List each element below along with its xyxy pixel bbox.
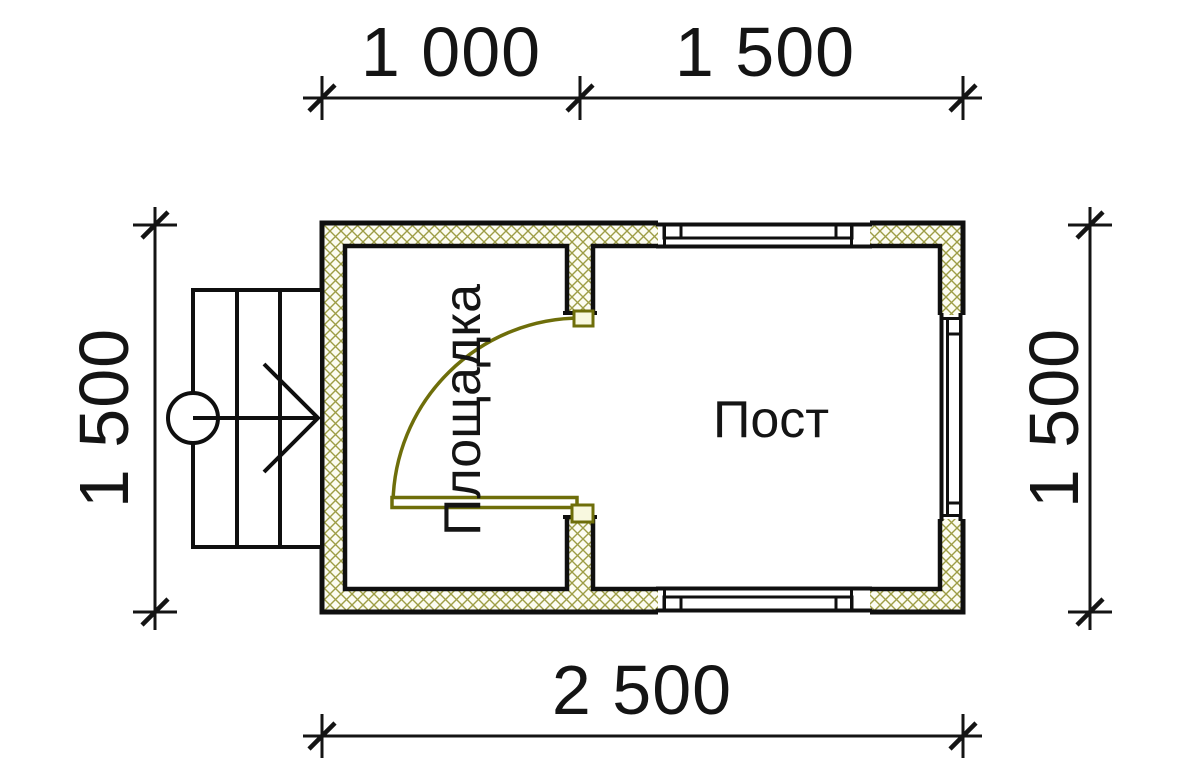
- window-top: [656, 218, 872, 251]
- door-hinge-block: [572, 505, 593, 522]
- dimension-left: 1 500: [65, 207, 177, 630]
- dimension-right: 1 500: [1015, 207, 1112, 630]
- floor-plan-canvas: VANDA: [0, 0, 1200, 772]
- dimension-bottom: 2 500: [303, 651, 982, 758]
- dim-label-top-right: 1 500: [675, 13, 855, 91]
- door-jamb-top: [574, 311, 593, 326]
- dimension-top: 1 000 1 500: [303, 13, 982, 120]
- dim-label-right: 1 500: [1015, 328, 1093, 508]
- door-opening: [562, 313, 598, 517]
- room-label-post: Пост: [713, 391, 829, 449]
- room-label-ploshchadka: Площадка: [434, 284, 492, 536]
- floor-plan-page: VANDA: [0, 0, 1200, 772]
- window-right: [937, 313, 966, 521]
- dim-label-left: 1 500: [65, 328, 143, 508]
- walls: [322, 223, 963, 612]
- dim-label-bottom: 2 500: [552, 651, 732, 729]
- dim-label-top-left: 1 000: [361, 13, 541, 91]
- window-bottom: [656, 584, 872, 617]
- stairs: [168, 290, 322, 547]
